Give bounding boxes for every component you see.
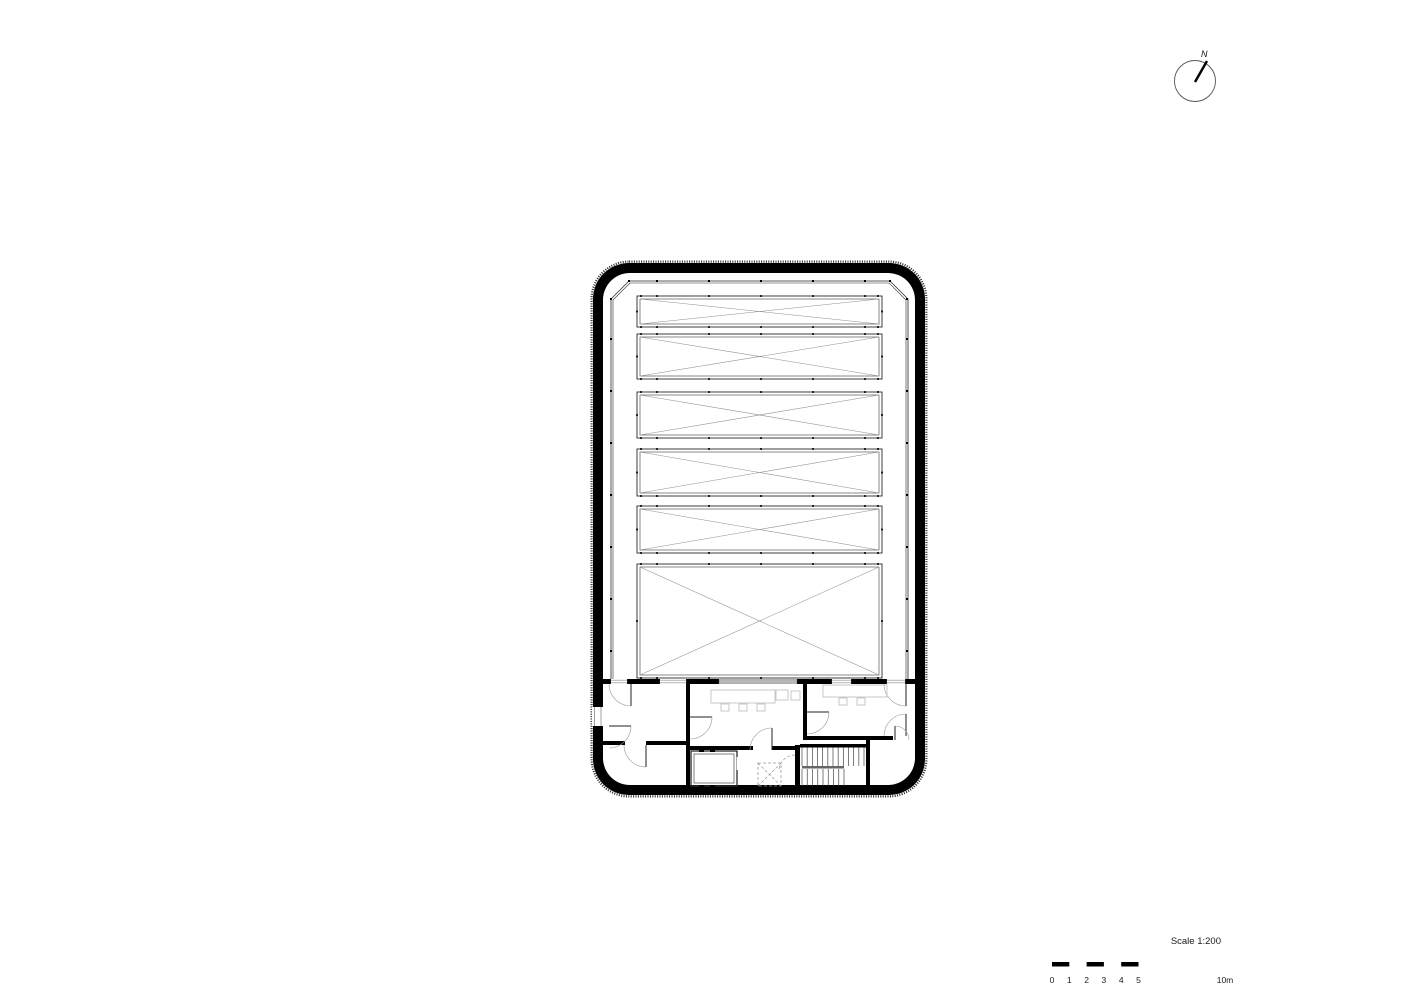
grid-dot	[708, 333, 710, 335]
grid-dot	[708, 295, 710, 297]
grid-dot	[760, 563, 762, 565]
grid-dot	[864, 280, 866, 282]
wall-segment	[628, 679, 659, 684]
wall-segment	[603, 679, 610, 684]
grid-dot	[640, 677, 642, 679]
grid-dot	[877, 378, 879, 380]
grid-dot	[640, 563, 642, 565]
grid-dot	[881, 472, 883, 474]
grid-dot	[760, 677, 762, 679]
grid-dot	[881, 620, 883, 622]
grid-dot	[889, 280, 891, 282]
grid-dot	[864, 448, 866, 450]
wall-segment	[686, 684, 690, 787]
grid-dot	[864, 326, 866, 328]
grid-dot	[708, 505, 710, 507]
vent-tick	[710, 785, 715, 788]
grid-dot	[812, 333, 814, 335]
grid-dot	[906, 390, 908, 392]
grid-dot	[877, 391, 879, 393]
grid-dot	[636, 529, 638, 531]
grid-dot	[812, 495, 814, 497]
grid-dot	[610, 338, 612, 340]
wall-segment	[646, 741, 686, 745]
wall-segment	[866, 740, 870, 787]
grid-dot	[610, 298, 612, 300]
grid-dot	[640, 378, 642, 380]
grid-dot	[864, 552, 866, 554]
wall-segment	[800, 744, 866, 748]
grid-dot	[864, 437, 866, 439]
grid-dot	[812, 378, 814, 380]
grid-dot	[636, 472, 638, 474]
grid-dot	[760, 333, 762, 335]
grid-dot	[812, 437, 814, 439]
scale-tick-0: 0	[1050, 975, 1055, 985]
grid-dot	[877, 437, 879, 439]
grid-dot	[864, 677, 866, 679]
grid-dot	[636, 414, 638, 416]
building-shell	[592, 262, 927, 797]
wall-window	[592, 707, 604, 726]
grid-dot	[610, 546, 612, 548]
drawing-sheet: N Scale 1:200 0 1 2 3 4 5 10m	[0, 0, 1414, 1000]
interior-field	[603, 273, 915, 785]
grid-dot	[610, 650, 612, 652]
grid-dot	[656, 378, 658, 380]
grid-dot	[640, 437, 642, 439]
grid-dot	[640, 391, 642, 393]
grid-dot	[636, 356, 638, 358]
scale-bar-segment	[1087, 962, 1104, 967]
grid-dot	[610, 494, 612, 496]
grid-dot	[877, 505, 879, 507]
grid-dot	[628, 280, 630, 282]
grid-dot	[708, 437, 710, 439]
grid-dot	[656, 448, 658, 450]
grid-dot	[640, 505, 642, 507]
grid-dot	[656, 495, 658, 497]
grid-dot	[610, 598, 612, 600]
wall-segment	[690, 746, 753, 750]
grid-dot	[812, 677, 814, 679]
wall-segment	[797, 679, 831, 684]
grid-dot	[881, 529, 883, 531]
grid-dot	[812, 448, 814, 450]
scale-title: Scale 1:200	[1171, 936, 1221, 947]
grid-dot	[708, 280, 710, 282]
grid-dot	[812, 552, 814, 554]
scale-tick-4: 4	[1119, 975, 1124, 985]
grid-dot	[812, 505, 814, 507]
wall-segment	[603, 741, 625, 745]
grid-dot	[636, 620, 638, 622]
grid-dot	[708, 677, 710, 679]
grid-dot	[656, 391, 658, 393]
vent-tick	[699, 750, 704, 753]
grid-dot	[906, 298, 908, 300]
grid-dot	[864, 495, 866, 497]
scale-tick-5: 5	[1136, 975, 1141, 985]
scale-bar-segment	[1121, 962, 1138, 967]
grid-dot	[906, 442, 908, 444]
grid-dot	[906, 338, 908, 340]
grid-dot	[708, 552, 710, 554]
vent-tick	[699, 785, 704, 788]
scale-tick-1: 1	[1067, 975, 1072, 985]
grid-dot	[656, 437, 658, 439]
grid-dot	[877, 677, 879, 679]
grid-dot	[760, 391, 762, 393]
scale-bar-graphic	[1052, 962, 1139, 967]
grid-dot	[906, 546, 908, 548]
service-door-gap	[735, 757, 739, 770]
grid-dot	[881, 356, 883, 358]
wall-segment	[772, 746, 795, 750]
grid-dot	[640, 295, 642, 297]
grid-dot	[812, 391, 814, 393]
wall-segment	[803, 684, 807, 738]
grid-dot	[640, 448, 642, 450]
grid-dot	[656, 295, 658, 297]
grid-dot	[760, 326, 762, 328]
grid-dot	[760, 552, 762, 554]
grid-dot	[812, 280, 814, 282]
grid-dot	[656, 552, 658, 554]
grid-dot	[708, 391, 710, 393]
grid-dot	[656, 563, 658, 565]
grid-dot	[708, 563, 710, 565]
vent-tick	[710, 750, 715, 753]
grid-dot	[877, 333, 879, 335]
wall-segment	[687, 679, 719, 684]
wall-segment	[795, 745, 800, 787]
north-arrow-needle-icon	[1195, 61, 1207, 82]
grid-dot	[610, 390, 612, 392]
grid-dot	[864, 563, 866, 565]
grid-dot	[708, 448, 710, 450]
grid-dot	[877, 495, 879, 497]
scale-tick-2: 2	[1084, 975, 1089, 985]
north-arrow: N	[1175, 49, 1216, 102]
scale-bar: Scale 1:200 0 1 2 3 4 5 10m	[1050, 936, 1234, 985]
grid-dot	[656, 677, 658, 679]
grid-dot	[640, 326, 642, 328]
scale-tick-10m: 10m	[1217, 975, 1234, 985]
grid-dot	[610, 442, 612, 444]
grid-dot	[864, 391, 866, 393]
grid-dot	[877, 295, 879, 297]
north-label: N	[1201, 49, 1208, 59]
scale-bar-segment	[1052, 962, 1069, 967]
grid-dot	[812, 563, 814, 565]
grid-dot	[760, 295, 762, 297]
wall-segment	[906, 679, 915, 684]
grid-dot	[877, 448, 879, 450]
grid-dot	[906, 650, 908, 652]
floor-plan-svg: N Scale 1:200 0 1 2 3 4 5 10m	[0, 0, 1414, 1000]
grid-dot	[877, 563, 879, 565]
glazed-band	[719, 680, 797, 683]
grid-dot	[760, 495, 762, 497]
grid-dot	[708, 326, 710, 328]
grid-dot	[656, 280, 658, 282]
grid-dot	[640, 333, 642, 335]
grid-dot	[760, 280, 762, 282]
grid-dot	[656, 333, 658, 335]
grid-dot	[636, 311, 638, 313]
grid-dot	[864, 378, 866, 380]
grid-dot	[864, 333, 866, 335]
wall-segment	[803, 736, 893, 740]
front-wall	[603, 679, 915, 684]
grid-dot	[640, 552, 642, 554]
grid-dot	[906, 598, 908, 600]
grid-dot	[812, 326, 814, 328]
grid-dot	[708, 378, 710, 380]
grid-dot	[864, 505, 866, 507]
grid-dot	[812, 295, 814, 297]
wall-segment	[852, 679, 886, 684]
grid-dot	[881, 311, 883, 313]
grid-dot	[877, 552, 879, 554]
grid-dot	[877, 326, 879, 328]
grid-dot	[760, 378, 762, 380]
grid-dot	[640, 495, 642, 497]
grid-dot	[760, 448, 762, 450]
grid-dot	[906, 494, 908, 496]
grid-dot	[881, 414, 883, 416]
grid-dot	[864, 295, 866, 297]
stair-rail	[802, 766, 844, 769]
grid-dot	[760, 437, 762, 439]
grid-dot	[708, 495, 710, 497]
scale-tick-3: 3	[1102, 975, 1107, 985]
grid-dot	[656, 326, 658, 328]
grid-dot	[656, 505, 658, 507]
grid-dot	[760, 505, 762, 507]
